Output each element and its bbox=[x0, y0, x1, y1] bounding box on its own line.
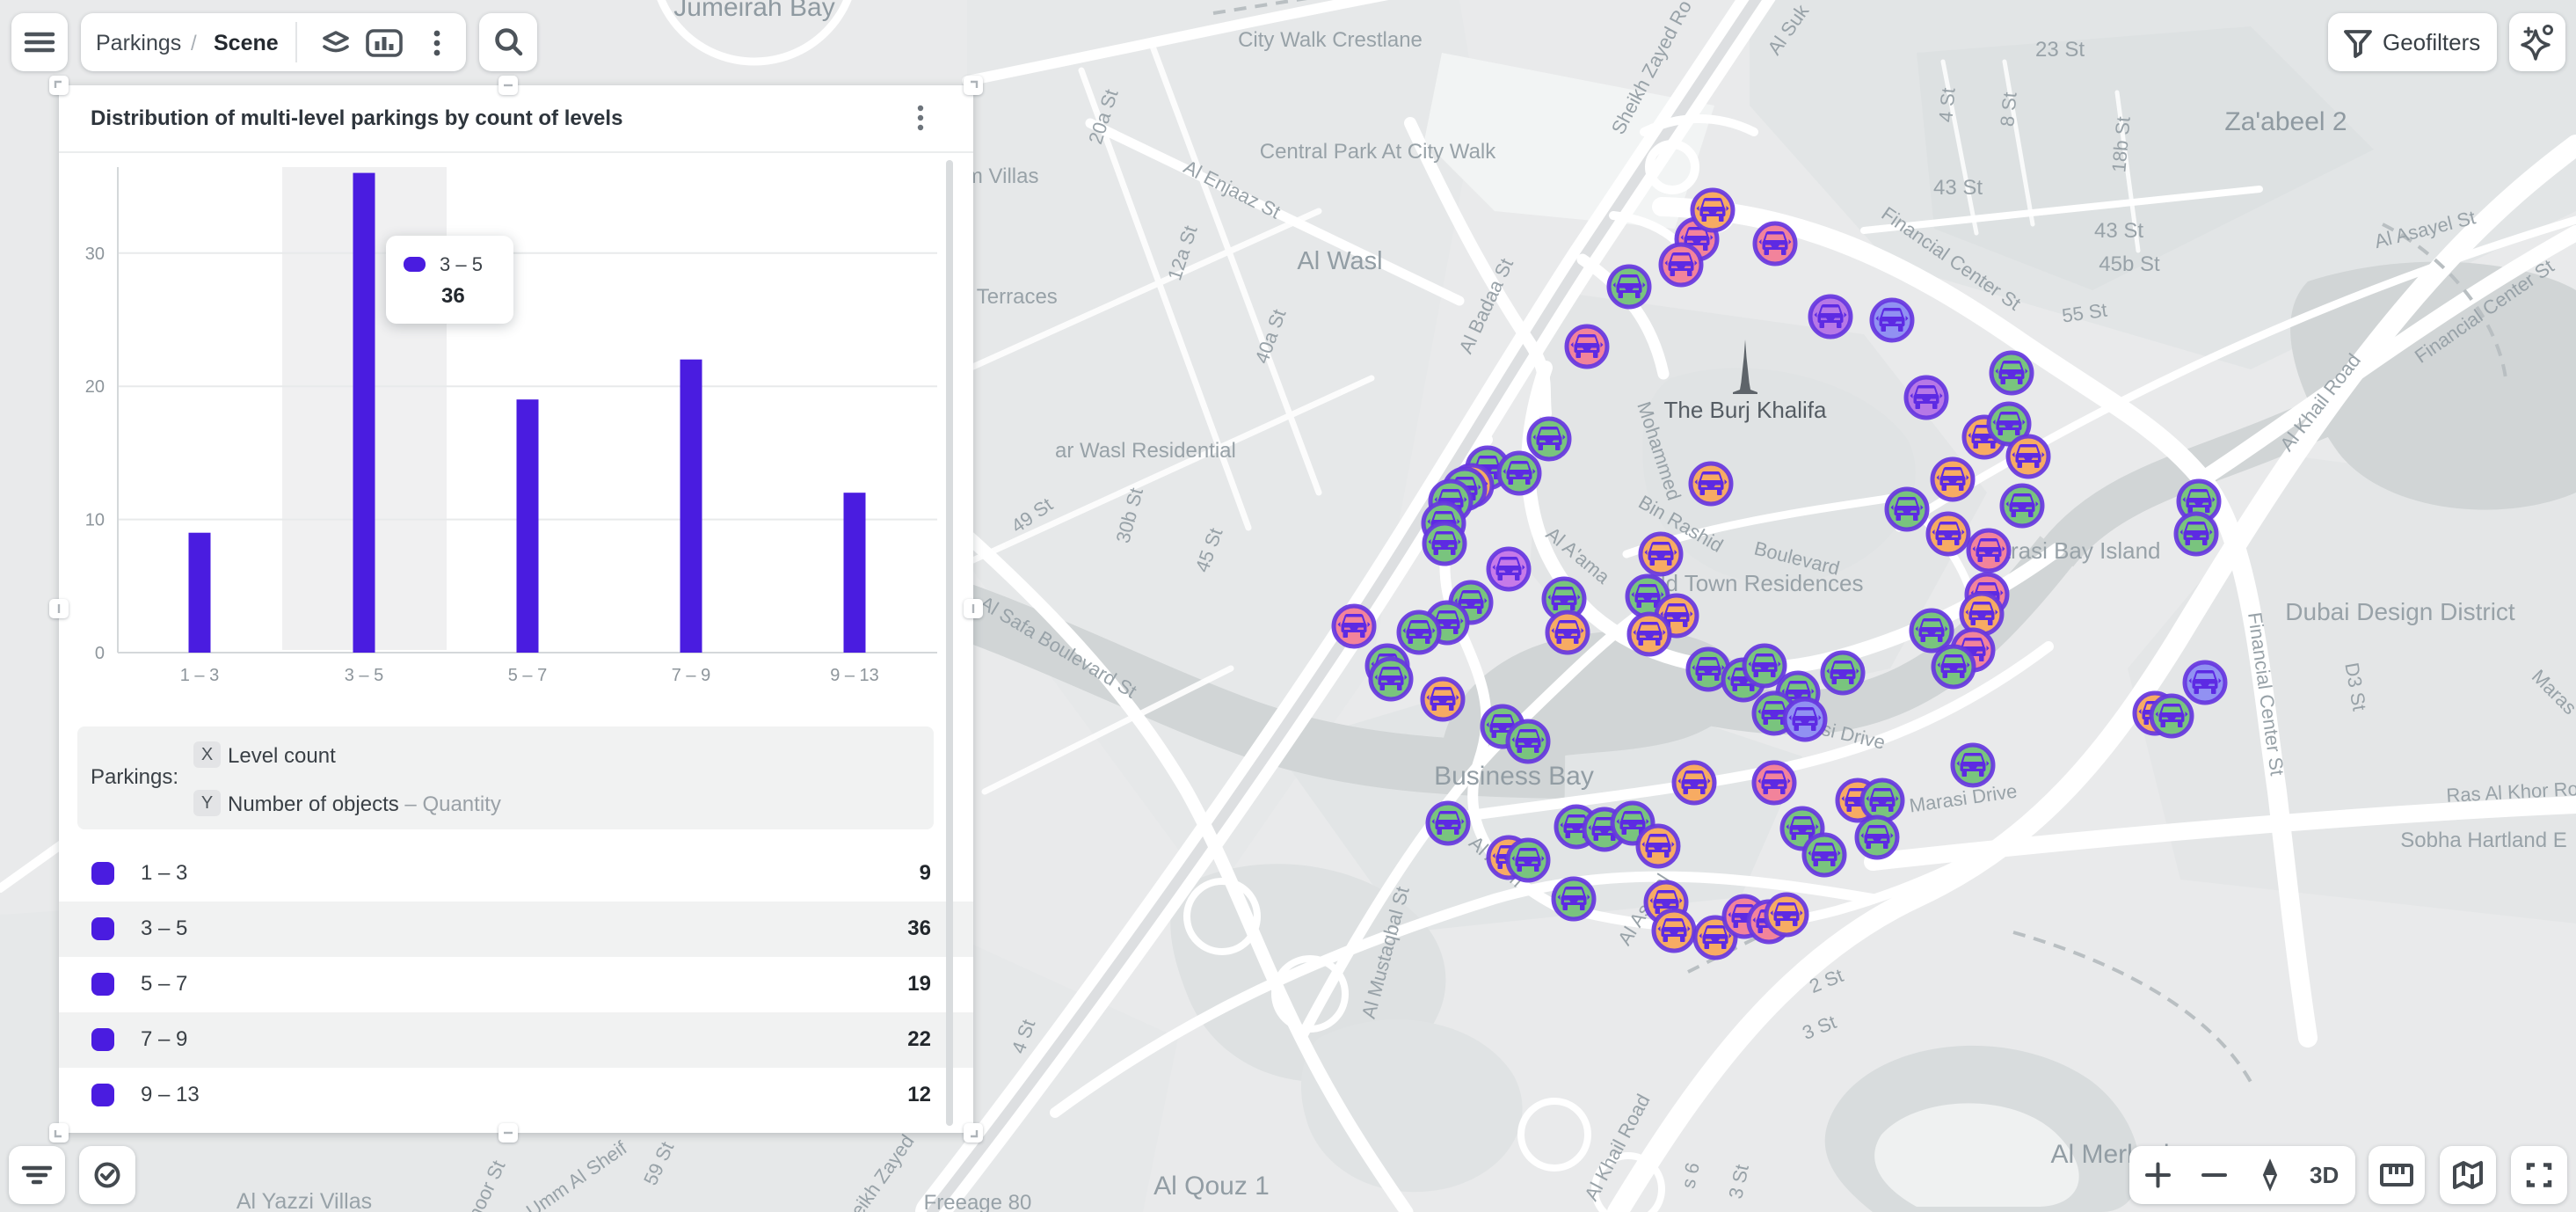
svg-text:Freeage 80: Freeage 80 bbox=[924, 1191, 1032, 1212]
svg-text:Geofilters: Geofilters bbox=[2383, 29, 2480, 55]
svg-text:43 St: 43 St bbox=[1933, 176, 1983, 200]
svg-text:3D: 3D bbox=[2310, 1162, 2339, 1188]
svg-text:arasi Bay Island: arasi Bay Island bbox=[1998, 537, 2161, 564]
svg-text:7 – 9: 7 – 9 bbox=[672, 666, 710, 685]
svg-text:The Burj Khalifa: The Burj Khalifa bbox=[1664, 397, 1828, 423]
svg-text:Business Bay: Business Bay bbox=[1434, 762, 1594, 791]
svg-text:Dubai Design District: Dubai Design District bbox=[2285, 598, 2515, 625]
svg-text:8 St: 8 St bbox=[1996, 91, 2020, 128]
svg-text:Central Park At City Walk: Central Park At City Walk bbox=[1260, 140, 1497, 164]
svg-text:ar Wasl Residential: ar Wasl Residential bbox=[1055, 439, 1236, 463]
svg-text:3 – 5: 3 – 5 bbox=[345, 666, 383, 685]
svg-text:/: / bbox=[191, 32, 197, 55]
svg-text:Scene: Scene bbox=[214, 31, 279, 55]
svg-text:5 – 7: 5 – 7 bbox=[508, 666, 547, 685]
svg-text:Al Qouz 1: Al Qouz 1 bbox=[1153, 1172, 1270, 1201]
svg-text:45b St: 45b St bbox=[2099, 252, 2160, 276]
svg-text:Sobha Hartland E: Sobha Hartland E bbox=[2400, 829, 2566, 852]
svg-text:Al Wasl: Al Wasl bbox=[1297, 247, 1382, 275]
svg-text:20: 20 bbox=[85, 377, 105, 397]
svg-text:Parkings: Parkings bbox=[96, 31, 181, 55]
svg-text:9 – 13: 9 – 13 bbox=[830, 666, 879, 685]
svg-text:Za'abeel 2: Za'abeel 2 bbox=[2224, 107, 2347, 136]
svg-text:0: 0 bbox=[95, 644, 105, 663]
svg-text:4 St: 4 St bbox=[1934, 87, 1959, 123]
svg-text:Al Yazzi Villas: Al Yazzi Villas bbox=[236, 1189, 372, 1212]
svg-text:e Terraces: e Terraces bbox=[959, 285, 1058, 309]
svg-text:1 – 3: 1 – 3 bbox=[180, 666, 219, 685]
svg-text:30: 30 bbox=[85, 245, 105, 264]
svg-text:23 St: 23 St bbox=[2035, 38, 2085, 62]
svg-text:10: 10 bbox=[85, 511, 105, 530]
svg-text:Jumeirah Bay: Jumeirah Bay bbox=[673, 0, 834, 22]
svg-text:City Walk Crestlane: City Walk Crestlane bbox=[1238, 28, 1423, 52]
svg-text:43 St: 43 St bbox=[2094, 219, 2143, 243]
